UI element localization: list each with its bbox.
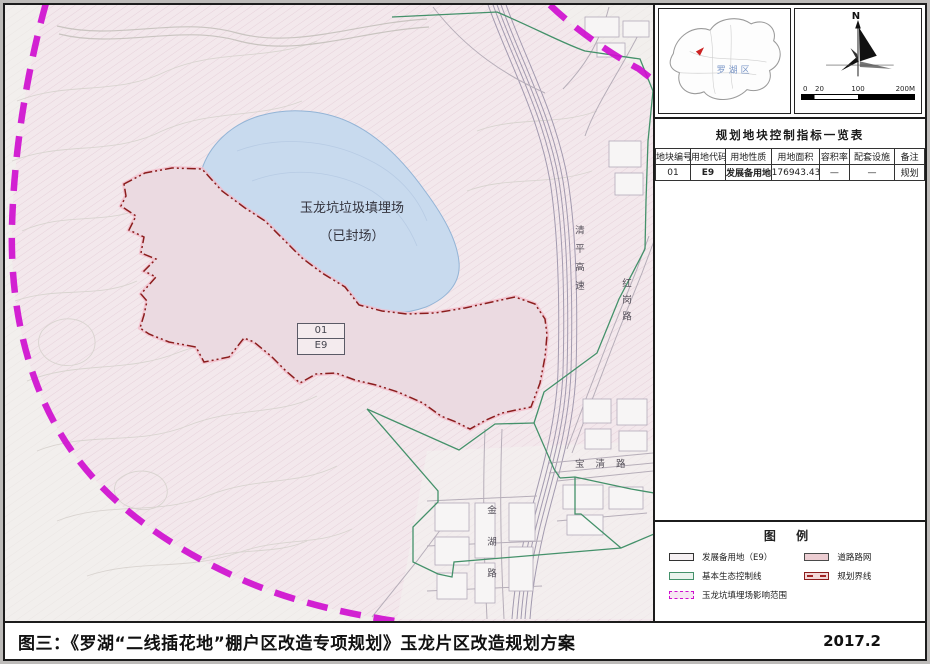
legend-grid: 发展备用地（E9） 基本生态控制线 玉龙坑填埋场影响范围 道路路网 xyxy=(655,551,925,601)
legend-section: 图 例 发展备用地（E9） 基本生态控制线 玉龙坑填埋场影响范围 xyxy=(655,520,925,621)
legend-item-road: 道路路网 xyxy=(804,551,919,563)
scale-tick-200: 200M xyxy=(896,85,915,93)
road-swatch-icon xyxy=(804,553,829,561)
district-label: 罗湖区 xyxy=(717,63,753,76)
cell-area: 176943.43 xyxy=(771,165,819,181)
table-row: 01 E9 发展备用地 176943.43 — — 规划 xyxy=(656,165,925,181)
col-use-code: 用地代码 xyxy=(690,149,725,165)
document-border: 玉龙坑垃圾填埋场 （已封场） 01 E9 清平高速 红岗路 宝清路 金湖路 xyxy=(3,3,927,661)
col-far: 容积率 xyxy=(820,149,850,165)
table-title: 规划地块控制指标一览表 xyxy=(655,127,925,143)
parcel-swatch-icon xyxy=(669,553,694,561)
col-remark: 备注 xyxy=(895,149,925,165)
scale-tick-0: 0 xyxy=(803,85,807,93)
planning-map: 玉龙坑垃圾填埋场 （已封场） 01 E9 清平高速 红岗路 宝清路 金湖路 xyxy=(5,5,653,621)
col-parcel-no: 地块编号 xyxy=(656,149,691,165)
col-area: 用地面积 xyxy=(771,149,819,165)
scale-bar-graphic xyxy=(801,94,915,100)
eco-swatch-icon xyxy=(669,572,694,580)
cell-parcel-no: 01 xyxy=(656,165,691,181)
table-header-row: 地块编号 用地代码 用地性质 用地面积 容积率 配套设施 备注 xyxy=(656,149,925,165)
north-label: N xyxy=(852,11,860,22)
control-index-table: 地块编号 用地代码 用地性质 用地面积 容积率 配套设施 备注 01 E9 发展… xyxy=(655,148,925,181)
legend-label: 发展备用地（E9） xyxy=(702,551,772,563)
title-bar: 图三：《罗湖“二线插花地”棚户区改造专项规划》玉龙片区改造规划方案 2017.2 xyxy=(5,621,925,659)
legend-label: 道路路网 xyxy=(837,551,871,563)
legend-label: 基本生态控制线 xyxy=(702,570,762,582)
locator-canvas xyxy=(659,9,790,113)
figure-caption: 图三：《罗湖“二线插花地”棚户区改造专项规划》玉龙片区改造规划方案 xyxy=(5,629,823,654)
scale-bar: 0 20 100 200M xyxy=(801,85,915,101)
scale-tick-100: 100 xyxy=(851,85,864,93)
content-row: 玉龙坑垃圾填埋场 （已封场） 01 E9 清平高速 红岗路 宝清路 金湖路 xyxy=(5,5,925,621)
boundary-swatch-icon xyxy=(804,572,829,580)
influence-swatch-icon xyxy=(669,591,694,599)
figure-date: 2017.2 xyxy=(823,632,881,650)
panel-spacer xyxy=(655,187,925,520)
cell-use-code: E9 xyxy=(690,165,725,181)
info-panel: 罗湖区 N 0 20 100 xyxy=(653,5,925,621)
legend-label: 规划界线 xyxy=(837,570,871,582)
legend-right-column: 道路路网 规划界线 xyxy=(804,551,919,601)
cell-far: — xyxy=(820,165,850,181)
legend-item-parcel: 发展备用地（E9） xyxy=(669,551,804,563)
col-use-type: 用地性质 xyxy=(725,149,771,165)
col-facilities: 配套设施 xyxy=(849,149,895,165)
compass-icon xyxy=(795,20,921,82)
scale-labels: 0 20 100 200M xyxy=(801,85,915,94)
control-index-section: 规划地块控制指标一览表 地块编号 用地代码 用地性质 用地面积 容积率 配套设施… xyxy=(655,119,925,187)
legend-item-eco: 基本生态控制线 xyxy=(669,570,804,582)
north-scale-box: N 0 20 100 200M xyxy=(794,8,922,114)
cell-remark: 规划 xyxy=(895,165,925,181)
legend-item-boundary: 规划界线 xyxy=(804,570,919,582)
cell-use-type: 发展备用地 xyxy=(725,165,771,181)
legend-item-influence: 玉龙坑填埋场影响范围 xyxy=(669,589,804,601)
page-frame: 玉龙坑垃圾填埋场 （已封场） 01 E9 清平高速 红岗路 宝清路 金湖路 xyxy=(0,0,930,664)
map-canvas xyxy=(5,5,653,621)
legend-label: 玉龙坑填埋场影响范围 xyxy=(702,589,787,601)
panel-top-boxes: 罗湖区 N 0 20 100 xyxy=(655,5,925,119)
locator-map: 罗湖区 xyxy=(658,8,791,114)
legend-title: 图 例 xyxy=(655,527,925,544)
legend-left-column: 发展备用地（E9） 基本生态控制线 玉龙坑填埋场影响范围 xyxy=(669,551,804,601)
cell-facilities: — xyxy=(849,165,895,181)
scale-tick-20: 20 xyxy=(815,85,824,93)
